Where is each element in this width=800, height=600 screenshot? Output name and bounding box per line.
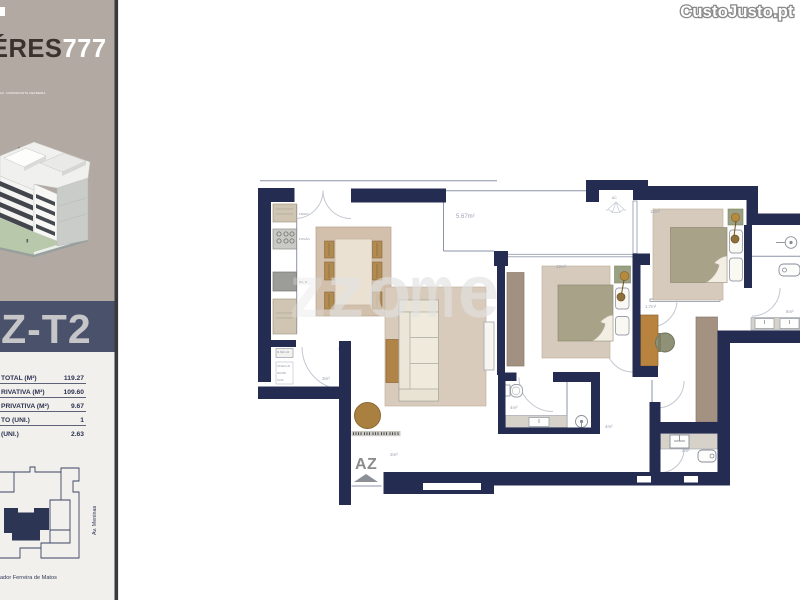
svg-text:5m²: 5m² [786, 309, 794, 314]
svg-text:TO (UNI.): TO (UNI.) [1, 417, 30, 424]
svg-text:4m²: 4m² [510, 405, 518, 410]
svg-text:3m²: 3m² [322, 376, 330, 381]
svg-text:2.63: 2.63 [71, 431, 84, 438]
svg-text:12m²: 12m² [556, 264, 567, 269]
svg-text:TOTAL (M²): TOTAL (M²) [1, 375, 37, 382]
svg-text:AV. COMANDANTE FERREIRA: AV. COMANDANTE FERREIRA [0, 91, 46, 95]
svg-text:SUJA: SUJA [277, 378, 284, 382]
svg-text:Av. Meninas: Av. Meninas [92, 506, 98, 535]
svg-text:o: o [366, 250, 411, 333]
svg-text:1.7m²: 1.7m² [645, 304, 657, 309]
svg-text:12m²: 12m² [650, 209, 661, 214]
svg-text:CustoJusto.pt: CustoJusto.pt [680, 3, 794, 21]
svg-text:2m²: 2m² [682, 448, 690, 453]
svg-text:(UNI.): (UNI.) [1, 431, 19, 438]
svg-text:FOGÃO: FOGÃO [299, 236, 311, 241]
svg-text:ROUPA: ROUPA [277, 371, 286, 375]
svg-text:RIVATIVA (M²): RIVATIVA (M²) [1, 389, 45, 396]
svg-text:z: z [327, 250, 364, 333]
svg-text:5.67m²: 5.67m² [456, 214, 475, 220]
svg-text:AT.SEC.LR: AT.SEC.LR [277, 364, 290, 368]
svg-text:9.67: 9.67 [71, 403, 84, 410]
svg-text:1: 1 [80, 417, 84, 424]
svg-text:ÉRES777: ÉRES777 [0, 34, 107, 63]
svg-text:FRIGO: FRIGO [299, 212, 309, 216]
svg-text:4m²: 4m² [605, 424, 613, 429]
svg-text:2m²: 2m² [390, 452, 398, 457]
svg-text:109.60: 109.60 [64, 389, 85, 396]
svg-text:ador Ferreira de Matos: ador Ferreira de Matos [0, 575, 57, 581]
svg-text:M.SEC.LR: M.SEC.LR [277, 350, 289, 354]
svg-text:PRIVATIVA (M²): PRIVATIVA (M²) [1, 403, 49, 410]
svg-text:e: e [458, 250, 499, 333]
svg-text:119.27: 119.27 [64, 375, 84, 382]
svg-text:AZ-T2: AZ-T2 [0, 306, 92, 352]
svg-text:AC: AC [612, 196, 617, 200]
svg-text:m: m [409, 250, 455, 333]
svg-text:AZ: AZ [355, 456, 377, 473]
svg-text:z: z [289, 250, 326, 333]
